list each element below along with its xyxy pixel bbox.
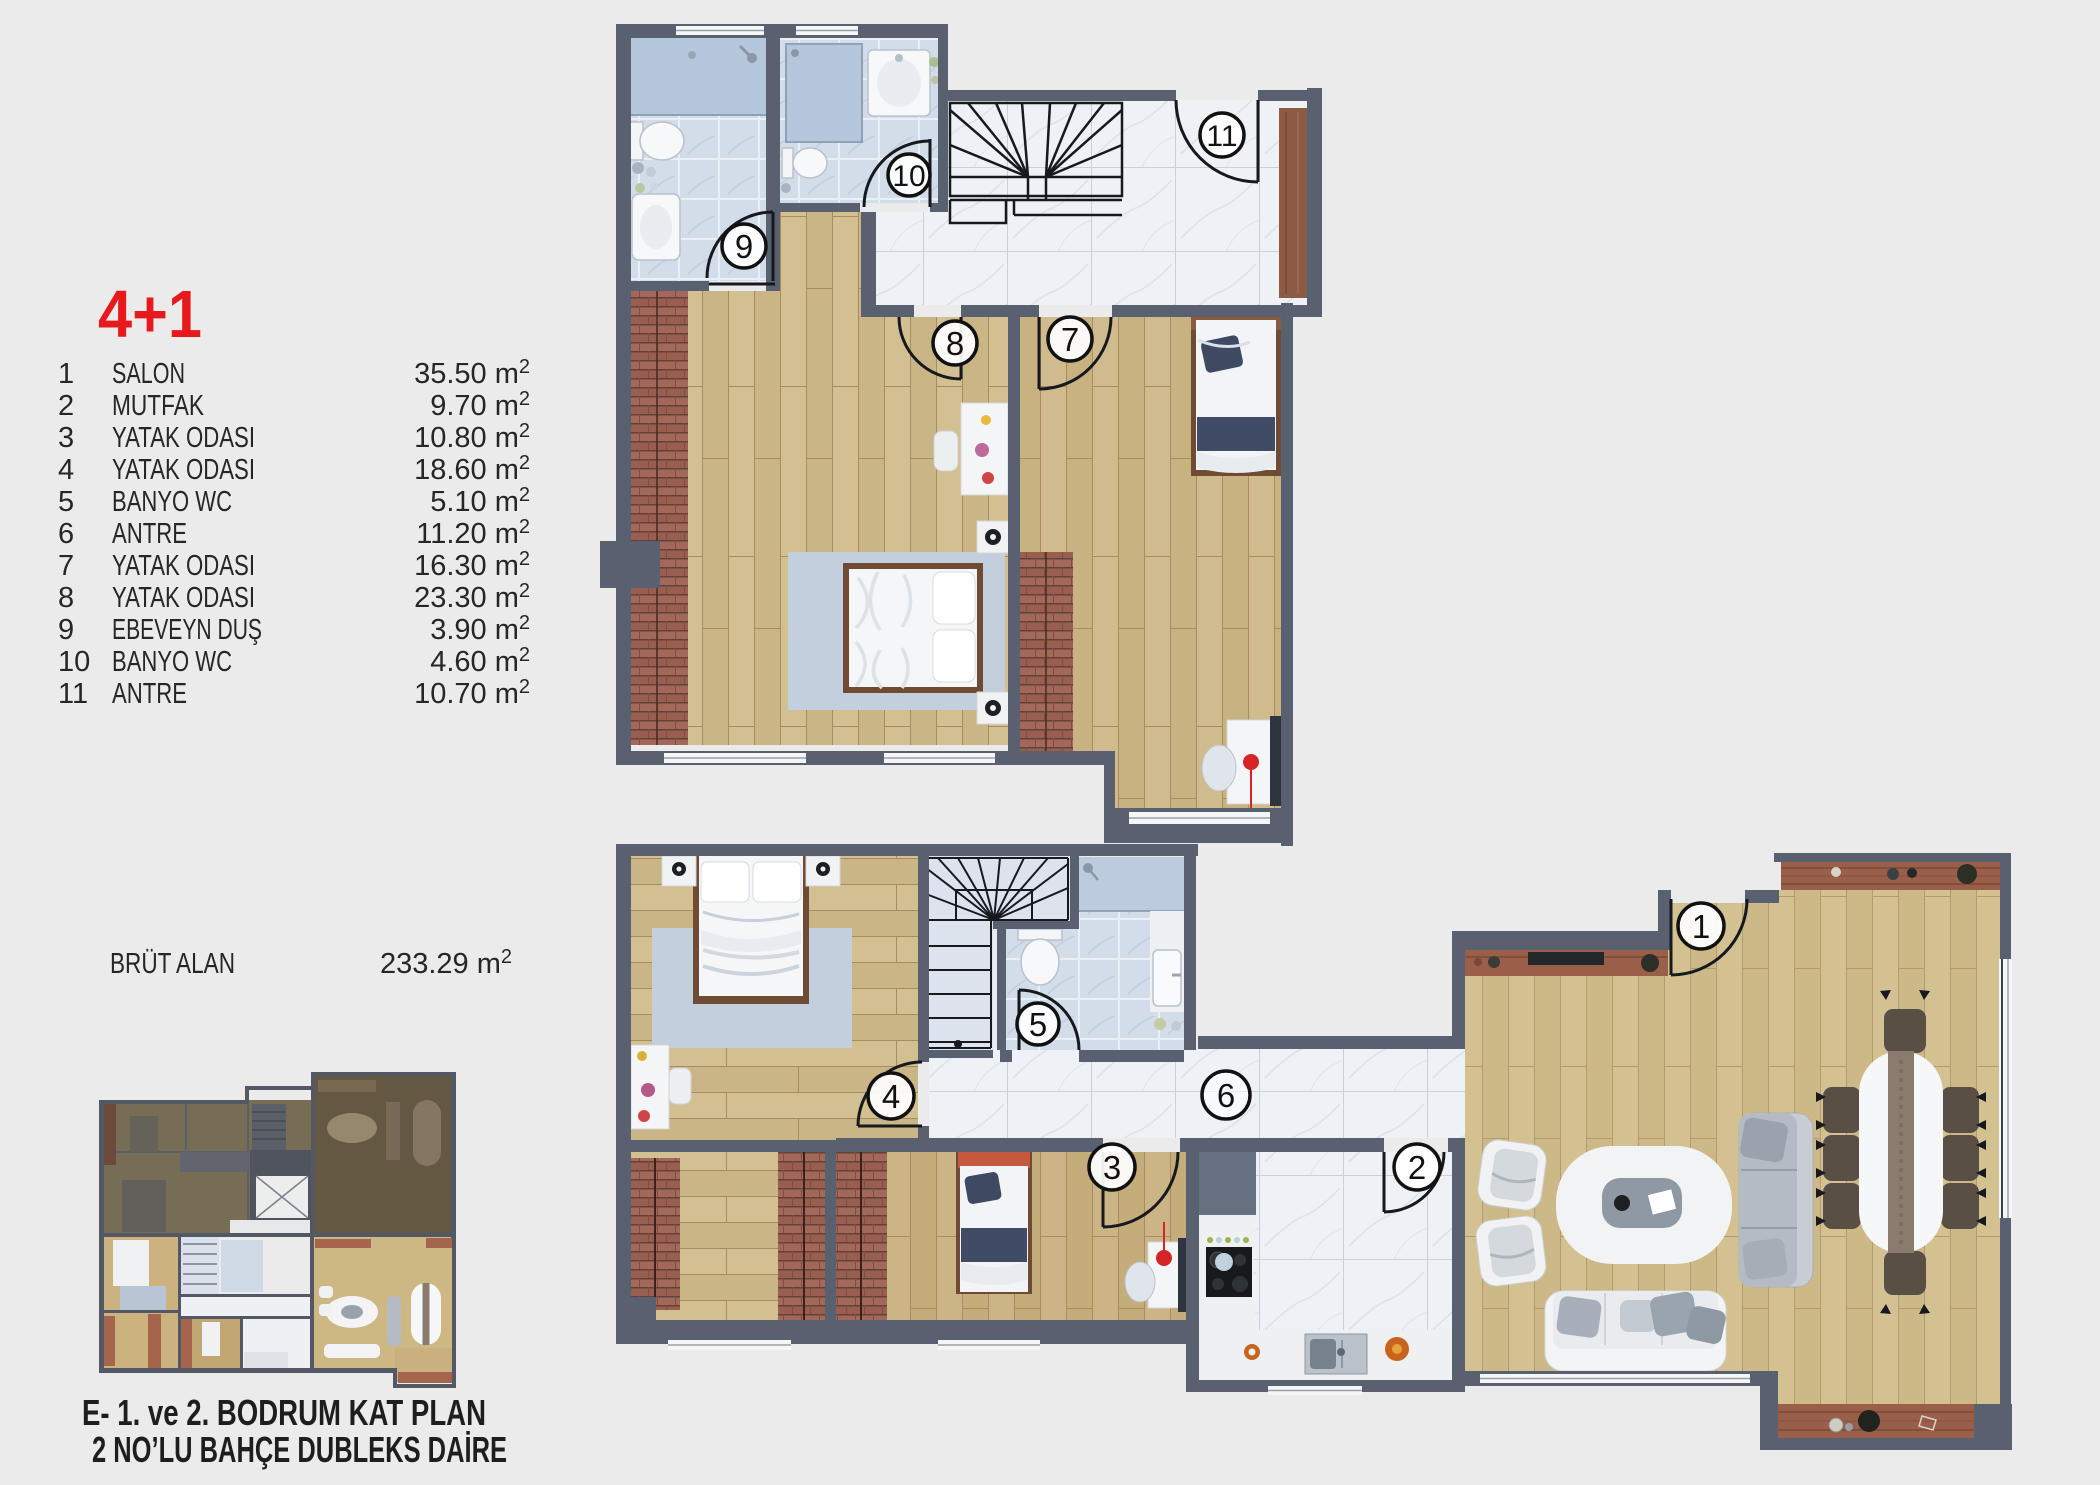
svg-text:YATAK ODASI: YATAK ODASI xyxy=(112,582,255,614)
svg-text:1: 1 xyxy=(1692,908,1710,945)
svg-text:ANTRE: ANTRE xyxy=(112,678,187,710)
svg-text:233.29 m2: 233.29 m2 xyxy=(380,946,512,980)
svg-text:4.60 m2: 4.60 m2 xyxy=(430,644,530,678)
svg-text:4: 4 xyxy=(882,1078,900,1115)
svg-text:3: 3 xyxy=(1103,1149,1121,1186)
svg-text:6: 6 xyxy=(58,518,74,550)
svg-text:8: 8 xyxy=(58,582,74,614)
svg-text:YATAK ODASI: YATAK ODASI xyxy=(112,422,255,454)
svg-text:10: 10 xyxy=(892,160,925,193)
svg-text:9.70 m2: 9.70 m2 xyxy=(430,388,530,422)
svg-text:ANTRE: ANTRE xyxy=(112,518,187,550)
svg-text:MUTFAK: MUTFAK xyxy=(112,390,205,422)
svg-text:4: 4 xyxy=(58,454,74,486)
svg-text:23.30 m2: 23.30 m2 xyxy=(414,580,530,614)
svg-text:3: 3 xyxy=(58,422,74,454)
svg-text:EBEVEYN DUŞ: EBEVEYN DUŞ xyxy=(112,614,262,646)
svg-text:2: 2 xyxy=(58,390,74,422)
svg-text:35.50 m2: 35.50 m2 xyxy=(414,356,530,390)
svg-text:11.20 m2: 11.20 m2 xyxy=(416,516,530,550)
svg-text:5: 5 xyxy=(58,486,74,518)
svg-text:1: 1 xyxy=(58,358,74,390)
svg-text:10: 10 xyxy=(58,646,90,678)
svg-text:10.80 m2: 10.80 m2 xyxy=(414,420,530,454)
svg-text:BANYO WC: BANYO WC xyxy=(112,486,232,518)
svg-text:BANYO WC: BANYO WC xyxy=(112,646,232,678)
svg-text:7: 7 xyxy=(1061,321,1079,358)
svg-text:18.60 m2: 18.60 m2 xyxy=(414,452,530,486)
svg-text:E- 1. ve 2. BODRUM KAT PLAN: E- 1. ve 2. BODRUM KAT PLAN xyxy=(82,1392,486,1433)
svg-text:11: 11 xyxy=(58,678,88,710)
svg-text:7: 7 xyxy=(58,550,74,582)
svg-text:3.90 m2: 3.90 m2 xyxy=(430,612,530,646)
svg-text:5: 5 xyxy=(1029,1006,1047,1043)
svg-text:SALON: SALON xyxy=(112,358,185,390)
svg-text:9: 9 xyxy=(58,614,74,646)
svg-text:YATAK ODASI: YATAK ODASI xyxy=(112,550,255,582)
svg-text:5.10 m2: 5.10 m2 xyxy=(430,484,530,518)
svg-text:BRÜT ALAN: BRÜT ALAN xyxy=(110,948,235,980)
svg-text:16.30 m2: 16.30 m2 xyxy=(414,548,530,582)
svg-text:2 NO’LU BAHÇE DUBLEKS DAİRE: 2 NO’LU BAHÇE DUBLEKS DAİRE xyxy=(92,1429,507,1470)
svg-text:6: 6 xyxy=(1217,1077,1235,1114)
svg-text:YATAK ODASI: YATAK ODASI xyxy=(112,454,255,486)
svg-text:11: 11 xyxy=(1206,120,1237,153)
svg-text:10.70 m2: 10.70 m2 xyxy=(414,676,530,710)
svg-text:4+1: 4+1 xyxy=(98,277,202,352)
svg-text:9: 9 xyxy=(735,228,753,265)
svg-text:2: 2 xyxy=(1408,1149,1426,1186)
svg-text:8: 8 xyxy=(946,325,964,362)
